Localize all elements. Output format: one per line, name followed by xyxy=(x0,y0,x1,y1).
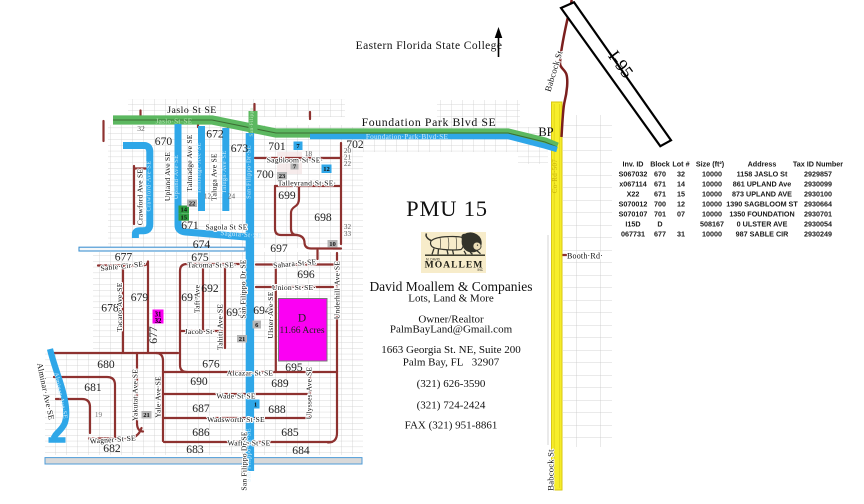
svg-text:1663 Georgia St. NE, Suite 200: 1663 Georgia St. NE, Suite 200 xyxy=(381,344,521,356)
svg-text:1350 FOUNDATION: 1350 FOUNDATION xyxy=(729,210,794,219)
svg-text:32: 32 xyxy=(155,318,162,325)
svg-text:S067032: S067032 xyxy=(619,170,648,179)
svg-text:S070107: S070107 xyxy=(619,210,648,219)
svg-text:0 ULSTER AVE: 0 ULSTER AVE xyxy=(737,220,788,229)
svg-text:2930054: 2930054 xyxy=(804,220,832,229)
svg-text:Lots, Land & More: Lots, Land & More xyxy=(408,293,494,305)
svg-text:FAX (321) 951-8861: FAX (321) 951-8861 xyxy=(405,420,498,432)
svg-text:684: 684 xyxy=(292,444,310,457)
svg-text:677: 677 xyxy=(147,326,160,344)
svg-text:(321) 626-3590: (321) 626-3590 xyxy=(417,378,486,390)
svg-text:Waffle·St·SE: Waffle·St·SE xyxy=(228,439,271,448)
svg-text:10000: 10000 xyxy=(702,170,722,179)
svg-text:681: 681 xyxy=(84,381,102,394)
svg-text:10000: 10000 xyxy=(702,210,722,219)
svg-text:33: 33 xyxy=(344,230,352,238)
svg-text:D: D xyxy=(298,313,306,325)
svg-text:Yakutat·Ave·SE: Yakutat·Ave·SE xyxy=(131,369,140,421)
svg-text:Booth·Rd·: Booth·Rd· xyxy=(567,252,603,261)
svg-text:670: 670 xyxy=(654,170,666,179)
svg-text:14: 14 xyxy=(677,180,685,189)
svg-text:Jaslo St SE: Jaslo St SE xyxy=(167,105,217,116)
svg-text:067731: 067731 xyxy=(621,230,645,239)
svg-text:21: 21 xyxy=(239,336,246,343)
svg-text:10: 10 xyxy=(329,241,336,248)
svg-text:2929857: 2929857 xyxy=(804,170,832,179)
svg-text:697: 697 xyxy=(270,242,288,255)
svg-text:Crawford Ave SE: Crawford Ave SE xyxy=(136,169,145,226)
svg-text:12: 12 xyxy=(677,200,685,209)
svg-text:Tahiti·Ave·SE: Tahiti·Ave·SE xyxy=(216,304,225,350)
svg-text:Tax ID Number: Tax ID Number xyxy=(793,160,843,169)
svg-text:I15D: I15D xyxy=(625,220,640,229)
svg-text:Size (ft²): Size (ft²) xyxy=(696,160,725,169)
svg-text:1158 JASLO St: 1158 JASLO St xyxy=(737,170,788,179)
svg-text:Eastern Florida State College: Eastern Florida State College xyxy=(356,40,503,52)
svg-text:Ulysses·Ave·SE: Ulysses·Ave·SE xyxy=(305,367,314,420)
svg-text:22: 22 xyxy=(189,201,196,208)
svg-text:686: 686 xyxy=(192,426,210,439)
svg-text:x067114: x067114 xyxy=(619,180,647,189)
svg-text:687: 687 xyxy=(192,402,210,415)
svg-text:Palm Bay, FL 32907: Palm Bay, FL 32907 xyxy=(403,357,500,369)
svg-text:696: 696 xyxy=(297,268,315,281)
svg-text:D: D xyxy=(657,220,662,229)
svg-text:702: 702 xyxy=(346,138,364,151)
svg-text:Taluga·Ave·SE: Taluga·Ave·SE xyxy=(221,150,228,193)
svg-text:680: 680 xyxy=(97,358,115,371)
svg-text:San Filippo Dr SE: San Filippo Dr SE xyxy=(240,431,249,490)
svg-text:Foundation·Park·Blvd·SE: Foundation·Park·Blvd·SE xyxy=(366,133,449,141)
svg-text:19: 19 xyxy=(95,411,103,419)
svg-text:32: 32 xyxy=(137,124,145,133)
svg-text:Talmadge·Ave·SE: Talmadge·Ave·SE xyxy=(195,142,202,194)
svg-text:677: 677 xyxy=(654,230,666,239)
svg-text:671: 671 xyxy=(181,219,199,232)
svg-text:BP: BP xyxy=(538,125,553,139)
svg-text:1: 1 xyxy=(254,401,257,408)
svg-text:10000: 10000 xyxy=(702,190,722,199)
svg-text:Union·St·SE·: Union·St·SE· xyxy=(272,283,316,292)
svg-text:Ulster·Ave·SE: Ulster·Ave·SE xyxy=(266,291,275,338)
svg-text:700: 700 xyxy=(256,168,274,181)
svg-text:692: 692 xyxy=(201,282,219,295)
svg-text:695: 695 xyxy=(285,361,303,374)
svg-text:14: 14 xyxy=(180,207,187,214)
svg-text:Lot #: Lot # xyxy=(672,160,689,169)
svg-text:2930249: 2930249 xyxy=(804,230,832,239)
svg-text:Underhill·Ave·SE: Underhill·Ave·SE xyxy=(333,261,342,319)
svg-text:2930100: 2930100 xyxy=(804,190,832,199)
svg-text:Crawford·Ave·SE: Crawford·Ave·SE xyxy=(145,161,152,212)
svg-text:679: 679 xyxy=(131,291,149,304)
svg-text:31: 31 xyxy=(677,230,685,239)
svg-text:Block: Block xyxy=(650,160,670,169)
svg-text:671: 671 xyxy=(654,190,666,199)
svg-text:683: 683 xyxy=(186,443,204,456)
svg-text:676: 676 xyxy=(202,358,220,371)
svg-text:MOALLEM: MOALLEM xyxy=(425,260,484,271)
svg-text:10000: 10000 xyxy=(702,200,722,209)
svg-text:S070012: S070012 xyxy=(619,200,648,209)
svg-text:Inv. ID: Inv. ID xyxy=(622,160,643,169)
svg-text:15: 15 xyxy=(677,190,685,199)
svg-text:673: 673 xyxy=(231,142,249,155)
svg-text:Talleyrand·St·SE·: Talleyrand·St·SE· xyxy=(278,179,337,188)
svg-text:Upland·Ave·SE: Upland·Ave·SE xyxy=(173,155,180,200)
svg-text:X22: X22 xyxy=(627,190,640,199)
svg-text:Address: Address xyxy=(748,160,777,169)
svg-text:699: 699 xyxy=(278,189,296,202)
svg-text:10000: 10000 xyxy=(702,230,722,239)
svg-text:Babcock St: Babcock St xyxy=(546,449,556,491)
svg-text:22: 22 xyxy=(344,160,352,168)
svg-text:Tacaro·Ave·SE: Tacaro·Ave·SE xyxy=(115,282,124,331)
svg-text:Sagbloom·St·SE·: Sagbloom·St·SE· xyxy=(267,156,324,165)
svg-text:PMU 15: PMU 15 xyxy=(406,196,488,221)
svg-text:12: 12 xyxy=(323,166,330,173)
svg-text:32: 32 xyxy=(677,170,685,179)
svg-text:San Filippo Dr SE: San Filippo Dr SE xyxy=(239,259,248,318)
svg-text:Co·Rd·507: Co·Rd·507 xyxy=(551,159,559,193)
svg-text:671: 671 xyxy=(654,180,666,189)
svg-text:Jacob·St·: Jacob·St· xyxy=(185,327,215,336)
svg-text:11.66 Acres: 11.66 Acres xyxy=(279,326,324,336)
svg-text:(321) 724-2424: (321) 724-2424 xyxy=(417,400,486,412)
svg-text:07: 07 xyxy=(677,210,685,219)
svg-text:2930664: 2930664 xyxy=(804,200,832,209)
svg-text:2930701: 2930701 xyxy=(804,210,832,219)
svg-text:Talmadge Ave SE: Talmadge Ave SE xyxy=(185,134,194,191)
svg-text:701: 701 xyxy=(654,210,666,219)
svg-text:Foundation Park Blvd SE: Foundation Park Blvd SE xyxy=(362,115,497,129)
svg-text:Taft·Ave: Taft·Ave xyxy=(193,284,202,313)
svg-text:698: 698 xyxy=(314,211,332,224)
svg-text:Tacoma·St·SE·: Tacoma·St·SE· xyxy=(187,261,236,270)
svg-text:Wadsworth·St·SE: Wadsworth·St·SE xyxy=(207,415,265,424)
svg-text:Sagola St SE: Sagola St SE xyxy=(205,223,247,232)
svg-text:690: 690 xyxy=(190,375,208,388)
svg-text:21: 21 xyxy=(143,412,150,419)
svg-text:Jaslo·St·SE: Jaslo·St·SE xyxy=(156,118,193,126)
svg-text:873 UPLAND AVE: 873 UPLAND AVE xyxy=(732,190,792,199)
svg-text:Taluga Ave SE: Taluga Ave SE xyxy=(210,153,219,201)
svg-text:Upland Ave SE: Upland Ave SE xyxy=(163,152,172,201)
svg-text:10000: 10000 xyxy=(702,180,722,189)
svg-text:INC: INC xyxy=(478,268,484,272)
svg-text:Wade·St·SE: Wade·St·SE xyxy=(216,392,256,401)
svg-text:PalmBayLand@Gmail.com: PalmBayLand@Gmail.com xyxy=(390,324,513,336)
svg-text:Yale·Ave·SE: Yale·Ave·SE xyxy=(154,376,163,418)
svg-text:2930099: 2930099 xyxy=(804,180,832,189)
svg-text:670: 670 xyxy=(155,135,173,148)
svg-text:674: 674 xyxy=(193,238,211,251)
svg-text:Alcazar·St·SE: Alcazar·St·SE xyxy=(227,369,274,378)
svg-text:1390 SAGBLOOM ST: 1390 SAGBLOOM ST xyxy=(726,200,798,209)
svg-text:508167: 508167 xyxy=(700,220,724,229)
svg-text:685: 685 xyxy=(281,426,299,439)
svg-text:987 SABLE CIR: 987 SABLE CIR xyxy=(736,230,790,239)
svg-text:701: 701 xyxy=(268,140,286,153)
svg-text:689: 689 xyxy=(271,377,289,390)
svg-text:700: 700 xyxy=(654,200,666,209)
svg-text:672: 672 xyxy=(206,128,224,141)
svg-text:861 UPLAND Ave: 861 UPLAND Ave xyxy=(733,180,792,189)
svg-text:San·Filippo: San·Filippo xyxy=(249,107,255,136)
svg-text:688: 688 xyxy=(268,403,286,416)
svg-text:24: 24 xyxy=(228,193,236,201)
